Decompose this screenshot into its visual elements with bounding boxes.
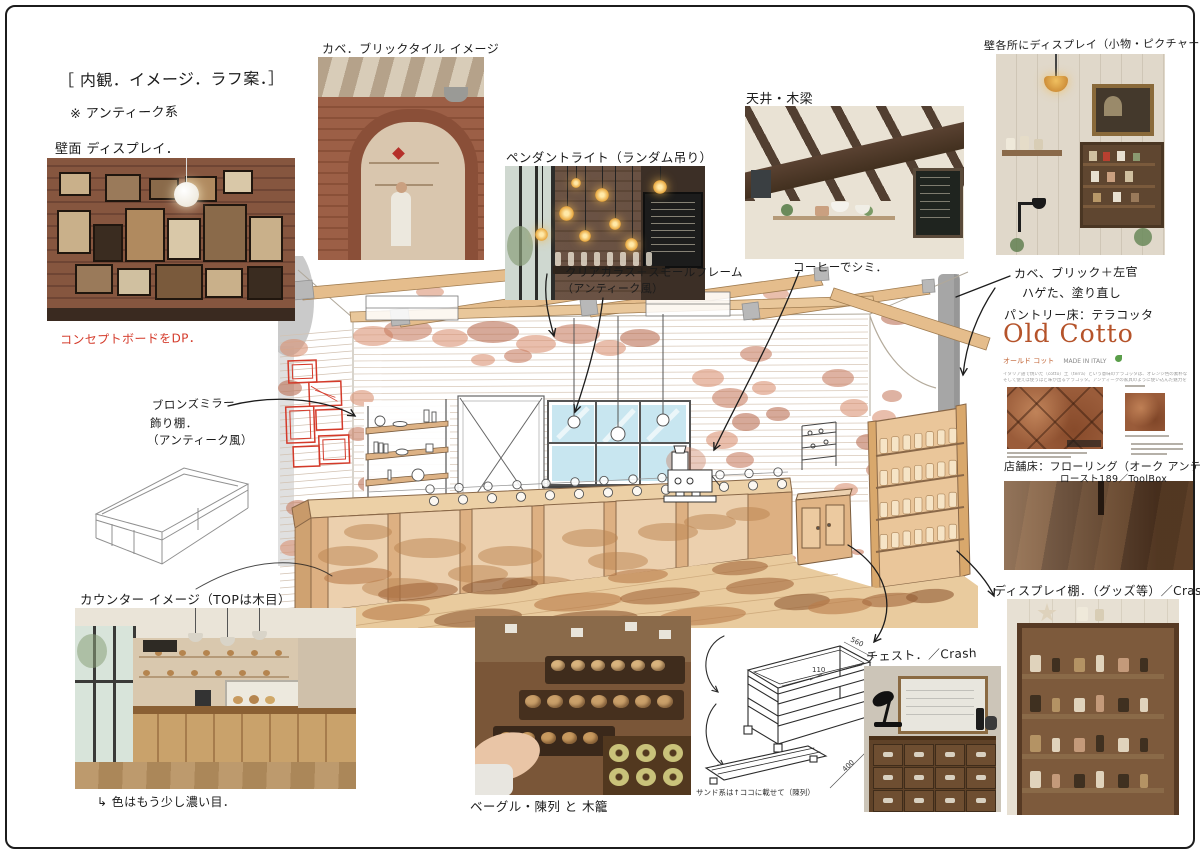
right-wall (298, 638, 356, 708)
deco (1096, 655, 1104, 672)
svg-text:110: 110 (812, 666, 825, 674)
terracotta-swatch (1125, 393, 1165, 431)
deco (914, 775, 924, 780)
picture-frames-group (47, 158, 295, 321)
deco (636, 768, 656, 786)
label-ceiling-beams: 天井・木梁 (746, 88, 813, 107)
deco (1074, 658, 1085, 672)
photo-wall-goods (996, 54, 1165, 255)
label-coffee-stain: コーヒーでシミ． (793, 259, 888, 275)
deco (609, 768, 629, 786)
deco (569, 695, 585, 708)
deco (1030, 771, 1041, 788)
deco (873, 744, 903, 766)
deco (1074, 774, 1085, 788)
deco (591, 695, 607, 708)
note-concept-board: コンセプトボードをDP． (60, 329, 202, 348)
deco (155, 264, 203, 300)
label-pendant-light: ペンダントライト（ランダム吊り） (506, 147, 712, 166)
label-bronze-mirror-3: （アンティーク風） (147, 432, 253, 448)
deco (945, 798, 955, 803)
person-figure (391, 192, 411, 246)
tall-display-shelf-sketch (868, 404, 970, 590)
label-bagel-display: ベーグル・陳列 と 木籠 (470, 796, 608, 815)
deco (249, 216, 283, 262)
globe-lamp-icon (174, 182, 199, 207)
deco (215, 670, 222, 676)
deco (873, 767, 903, 789)
deco (636, 744, 656, 762)
drawer-chest (869, 736, 996, 812)
framed-picture (1092, 84, 1154, 136)
deco (239, 670, 246, 676)
photo-chest (864, 666, 1001, 812)
menu-sign (143, 640, 177, 652)
deco (1052, 774, 1060, 788)
label-clear-glass-1: クリアガラス＋スモールフレーム (565, 264, 743, 280)
deco (1118, 774, 1129, 788)
greenery-icon (1134, 228, 1152, 246)
deco (125, 208, 165, 262)
deco (935, 744, 965, 766)
label-shop-floor-2: ロースト189／ToolBox (1060, 471, 1167, 485)
shelf-rows-group (1022, 628, 1174, 815)
deco (609, 744, 629, 762)
old-cotto-logo: Old Cotto (1003, 321, 1195, 347)
deco (976, 798, 986, 803)
deco (663, 768, 683, 786)
wire-rack-sketch (802, 422, 836, 470)
deco (263, 670, 270, 676)
pastry-tray (545, 656, 685, 684)
deco (1118, 658, 1129, 672)
figurine-icon (985, 716, 997, 730)
label-wall-plaster-2: ハゲた、塗り直し (1022, 284, 1121, 301)
greenery-icon (1010, 238, 1024, 252)
deco (251, 650, 258, 656)
deco (613, 695, 629, 708)
deco (945, 752, 955, 757)
deco (1030, 735, 1041, 752)
label-wall-goods: 壁各所にディスプレイ（小物・ピクチャー‥） (984, 35, 1200, 54)
old-cotto-origin: MADE IN ITALY (1063, 358, 1106, 365)
register-icon (195, 690, 211, 706)
deco (1140, 658, 1148, 672)
globe-lamp-cord (186, 158, 187, 184)
deco (904, 767, 934, 789)
deco (945, 775, 955, 780)
label-wall-display: 壁面 ディスプレイ． (55, 138, 179, 157)
window-wall (75, 626, 136, 768)
desk-lamp-icon (874, 722, 902, 727)
drawers-grid (869, 740, 996, 812)
deco (1052, 658, 1060, 672)
deco (591, 660, 605, 671)
deco (179, 650, 186, 656)
deco (966, 790, 996, 812)
brick-arch-opening (348, 109, 478, 260)
label-wall-plaster-1: カベ、ブリック＋左官 (1014, 263, 1138, 282)
deco (191, 670, 198, 676)
deco (631, 660, 645, 671)
deco (883, 752, 893, 757)
pendant-cord (195, 608, 196, 634)
old-cotto-description-line: そして使えば使うほど味が出るテラコッタ。アンティークの家具のように使い込んだ魅力… (1003, 378, 1187, 384)
deco (247, 266, 283, 300)
deco (883, 798, 893, 803)
label-bronze-mirror-1: ブロンズミラー (152, 395, 236, 414)
deco (976, 775, 986, 780)
photo-bagel-display (475, 616, 691, 795)
whiteboard (898, 676, 988, 734)
small-shelf (1002, 150, 1062, 156)
deco (904, 744, 934, 766)
deco (562, 732, 577, 744)
deco (227, 650, 234, 656)
crate-note: サンド系は↑ココに載せて（陳列） (696, 787, 815, 797)
concept-board: 560 110 150 400 サンド系は↑ココに載せて（陳列） (0, 0, 1200, 854)
deco (904, 790, 934, 812)
deco (1140, 738, 1148, 752)
deco (525, 695, 541, 708)
deco (635, 695, 651, 708)
deco (59, 172, 91, 196)
bottle-icon (976, 708, 984, 730)
swatch-caption-bar (1125, 435, 1169, 437)
deco (663, 744, 683, 762)
display-cabinet (1080, 142, 1164, 228)
note-counter-color: ↳ 色はもう少し濃い目． (97, 793, 235, 810)
deco (966, 767, 996, 789)
old-cotto-name-jp: オールド コット (1003, 357, 1054, 365)
bucket-icon (444, 87, 468, 102)
deco (1096, 735, 1104, 752)
deco (583, 732, 598, 744)
deco (1022, 754, 1164, 759)
deco (976, 752, 986, 757)
deco (75, 264, 113, 294)
deco (1022, 714, 1164, 719)
deco (93, 224, 123, 262)
floor-strip (75, 762, 356, 789)
board-title: ［ 内観．イメージ．ラフ案．］ (58, 65, 285, 91)
photo-display-shelf (1007, 599, 1179, 815)
deco (1096, 771, 1104, 788)
deco (1022, 788, 1164, 793)
deco (203, 650, 210, 656)
deco (555, 252, 561, 266)
leaf-icon (1115, 355, 1122, 362)
label-brick-tile: カベ．ブリックタイル イメージ (322, 40, 499, 57)
label-chest: チェスト．／Crash (866, 644, 977, 665)
photo-wall-display (47, 158, 295, 321)
deco (883, 775, 893, 780)
deco (275, 650, 282, 656)
shelf-strip (47, 308, 295, 321)
deco (143, 670, 150, 676)
deco (1074, 698, 1085, 712)
deco (167, 218, 201, 260)
svg-text:400: 400 (841, 758, 856, 773)
deco (651, 660, 665, 671)
deco (547, 695, 563, 708)
deco (1052, 738, 1060, 752)
counter-front (133, 714, 356, 762)
iron-wall-lamp-icon (1018, 202, 1021, 232)
deco (1118, 698, 1129, 712)
window-dark (751, 170, 771, 198)
board-subtitle: ※ アンティーク系 (70, 101, 179, 122)
terracotta-tile-photo (1007, 387, 1103, 449)
photo-ceiling-beams (745, 106, 964, 259)
deco (223, 170, 253, 194)
deco (205, 268, 243, 298)
bagels-group (603, 736, 691, 795)
wall-shelf (773, 216, 895, 220)
old-cotto-card: Old Cotto オールド コット MADE IN ITALY イタリア語で焼… (1003, 321, 1195, 457)
deco (1030, 695, 1041, 712)
deco (167, 670, 174, 676)
deco (1096, 695, 1104, 712)
chalkboard (913, 168, 963, 238)
label-pantry-floor: パントリー床：テラコッタ (1004, 306, 1153, 323)
wood-crate-sketch: 560 110 150 400 サンド系は↑ココに載せて（陳列） (690, 620, 880, 800)
lamp-cord (1055, 54, 1057, 78)
deco (611, 660, 625, 671)
table-leg (1098, 481, 1104, 515)
pastry-tray (519, 690, 684, 720)
deco (117, 268, 151, 296)
deco (57, 210, 91, 254)
deco (1140, 774, 1148, 788)
counter-corner-pencil-sketch (88, 450, 258, 590)
deco (1022, 674, 1164, 679)
bagel-basket (603, 736, 691, 795)
label-display-shelf: ディスプレイ棚．（グッズ等）／Crash (994, 582, 1200, 599)
deco (1140, 698, 1148, 712)
deco (966, 744, 996, 766)
photo-brick-arch (318, 57, 484, 260)
deco (551, 660, 565, 671)
svg-text:560: 560 (849, 636, 865, 649)
deco (657, 695, 673, 708)
deco (914, 752, 924, 757)
deco (935, 767, 965, 789)
deco (203, 204, 247, 262)
pendant-cord (259, 608, 260, 632)
label-bronze-mirror-2: 飾り棚． (150, 415, 198, 431)
deco (935, 790, 965, 812)
interior-perspective-sketch (278, 256, 993, 628)
deco (105, 174, 141, 202)
sleeve (475, 764, 513, 795)
deco (873, 790, 903, 812)
label-counter: カウンター イメージ（TOPは木目） (80, 589, 291, 608)
deco (571, 660, 585, 671)
label-clear-glass-2: （アンティーク風） (562, 280, 664, 296)
deco (1030, 655, 1041, 672)
basket-icon (815, 206, 829, 216)
pendant-cord (227, 608, 228, 638)
cabinet-sketch (784, 489, 864, 565)
deco (1074, 738, 1085, 752)
white-pendant-lamp (831, 202, 849, 212)
deco (1052, 698, 1060, 712)
plant-icon (781, 204, 793, 216)
deco (914, 798, 924, 803)
wood-shelf-unit (1017, 623, 1179, 815)
photo-counter (75, 608, 356, 789)
deco (1118, 738, 1129, 752)
photo-flooring (1004, 481, 1195, 570)
deco (541, 732, 556, 744)
